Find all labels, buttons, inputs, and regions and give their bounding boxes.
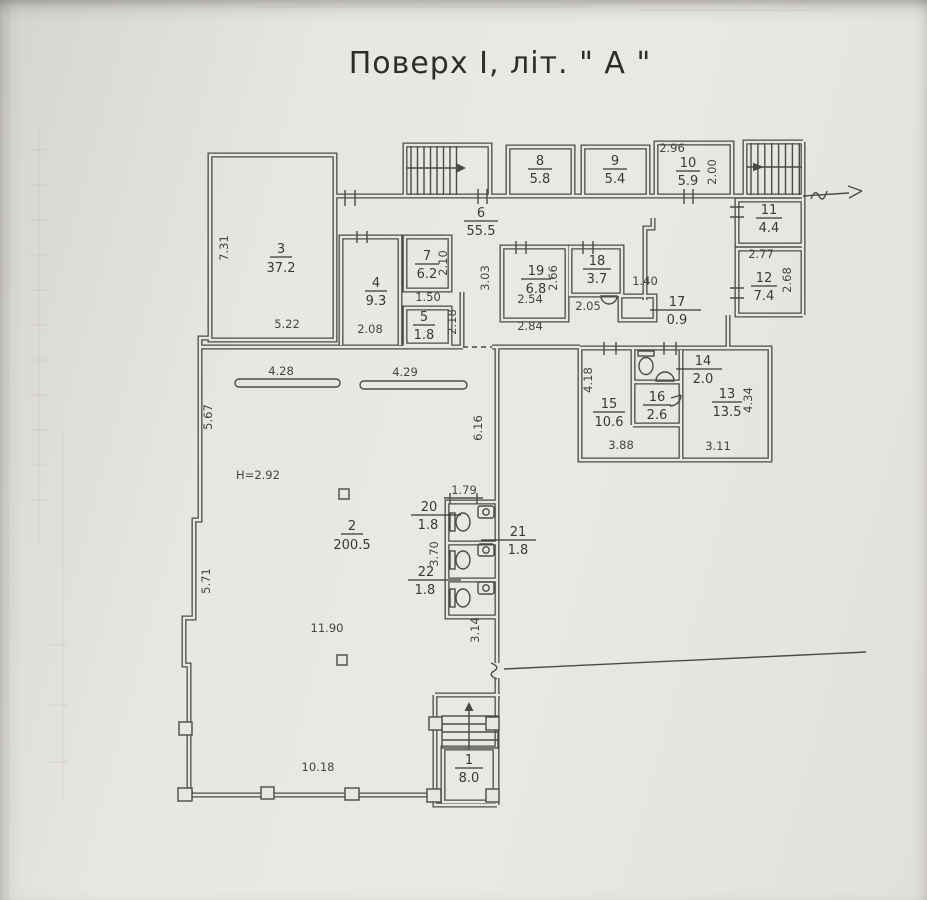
- room-18-number: 18: [589, 254, 606, 269]
- sink-icon: [478, 582, 494, 594]
- staircase-top-right-icon: [747, 143, 802, 195]
- room-14-fixtures: [638, 351, 674, 381]
- wc-stall-2-fixtures: [450, 544, 494, 569]
- column-marker: [429, 717, 442, 730]
- room-8-number: 8: [536, 154, 544, 169]
- room-15-area: 10.6: [595, 415, 624, 430]
- sink-icon: [483, 585, 489, 591]
- dim-counter-left: 4.28: [268, 364, 294, 378]
- scanned-floor-plan-page: Поверх І, літ. " А ": [0, 0, 927, 900]
- dim-room13-width: 3.11: [705, 439, 731, 453]
- dim-hall-left-upper: 5.67: [201, 404, 215, 430]
- room-6-number: 6: [477, 206, 485, 221]
- room-12-number: 12: [756, 271, 773, 286]
- dim-room18-gap: 1.40: [632, 274, 658, 288]
- dim-room19-height-left: 3.03: [478, 265, 492, 291]
- column-marker: [345, 788, 359, 800]
- column-marker: [486, 717, 499, 730]
- dim-room3-width: 5.22: [274, 317, 300, 331]
- room-1-number: 1: [465, 753, 473, 768]
- room-8-area: 5.8: [530, 172, 551, 187]
- room-16-number: 16: [649, 390, 666, 405]
- dim-room15-height: 4.18: [581, 367, 595, 393]
- toilet-icon: [638, 351, 654, 356]
- room-5-area: 1.8: [414, 328, 435, 343]
- room-13-area: 13.5: [713, 405, 742, 420]
- room-17-number: 17: [669, 295, 686, 310]
- dim-passage: 1.50: [415, 290, 441, 304]
- room-14-area: 2.0: [693, 372, 714, 387]
- dim-stalls-height: 3.70: [427, 541, 441, 567]
- toilet-icon: [456, 551, 470, 569]
- dim-counter-right: 4.29: [392, 365, 418, 379]
- dim-hall-right: 6.16: [471, 415, 485, 441]
- dim-hall-left-lower: 5.71: [199, 568, 213, 594]
- room-3-number: 3: [277, 242, 285, 257]
- room-11-area: 4.4: [759, 221, 780, 236]
- dim-room19-width-inner: 2.54: [517, 292, 543, 306]
- sink-icon: [478, 506, 494, 518]
- dim-room4-width: 2.08: [357, 322, 383, 336]
- stair-direction-arrow-icon: [457, 164, 466, 173]
- room-2-number: 2: [348, 519, 356, 534]
- room-19-number: 19: [528, 264, 545, 279]
- room-10-number: 10: [680, 156, 697, 171]
- staircase-top-left-icon: [406, 146, 466, 195]
- room-20-number: 20: [421, 500, 438, 515]
- dim-room10-depth: 2.00: [705, 159, 719, 185]
- floor-plan-drawing: Поверх І, літ. " А ": [0, 0, 927, 900]
- dim-room3-height: 7.31: [217, 235, 231, 261]
- dim-stall-width: 1.79: [451, 483, 477, 497]
- sink-icon: [478, 544, 494, 556]
- column-marker: [178, 788, 192, 801]
- wc-stall-3-fixtures: [450, 582, 494, 607]
- room-4-area: 9.3: [366, 294, 387, 309]
- page-bleedthrough-artifacts: [0, 0, 927, 900]
- dim-room7-height: 2.10: [436, 250, 450, 276]
- room-7-number: 7: [423, 249, 431, 264]
- dim-room12-width: 2.77: [748, 247, 774, 261]
- toilet-icon: [456, 589, 470, 607]
- dim-ceiling-height: H=2.92: [236, 468, 280, 482]
- toilet-icon: [450, 513, 455, 531]
- room-17-area: 0.9: [667, 313, 688, 328]
- dim-niche-height: 2.18: [445, 309, 459, 335]
- room-5-number: 5: [420, 310, 428, 325]
- sink-icon: [483, 547, 489, 553]
- dim-room18-width: 2.05: [575, 299, 601, 313]
- room-14-number: 14: [695, 354, 712, 369]
- column-marker: [337, 655, 347, 665]
- dim-wing-height: 3.14: [468, 617, 482, 643]
- dim-room15-width: 3.88: [608, 438, 634, 452]
- room-21-area: 1.8: [508, 543, 529, 558]
- dim-hall-width: 11.90: [311, 621, 344, 635]
- room-2-area: 200.5: [333, 538, 370, 553]
- dim-room10-width: 2.96: [659, 141, 685, 155]
- wc-stall-1-fixtures: [450, 506, 494, 531]
- room-15-number: 15: [601, 397, 618, 412]
- counter-right: [360, 381, 467, 389]
- room-7-area: 6.2: [417, 267, 438, 282]
- dim-hall-bottom-width: 10.18: [302, 760, 335, 774]
- column-marker: [179, 722, 192, 735]
- column-marker: [261, 787, 274, 799]
- room-9-area: 5.4: [605, 172, 626, 187]
- room-1-area: 8.0: [459, 771, 480, 786]
- dim-room19-width-outer: 2.84: [517, 319, 543, 333]
- room-6-area: 55.5: [467, 224, 496, 239]
- dim-room13-height: 4.34: [741, 387, 755, 413]
- counter-left: [235, 379, 340, 387]
- room-22-area: 1.8: [415, 583, 436, 598]
- dim-room12-depth: 2.68: [780, 267, 794, 293]
- toilet-icon: [456, 513, 470, 531]
- toilet-icon: [639, 358, 653, 375]
- room-21-number: 21: [510, 525, 527, 540]
- hall-counters: [235, 379, 467, 389]
- room-13-number: 13: [719, 387, 736, 402]
- stair-direction-arrow-icon: [465, 702, 474, 711]
- column-markers: [178, 489, 499, 802]
- dim-room19-height-right: 2.66: [546, 265, 560, 291]
- room-3-area: 37.2: [267, 261, 296, 276]
- room-11-number: 11: [761, 203, 778, 218]
- room-4-number: 4: [372, 276, 380, 291]
- room-18-area: 3.7: [587, 272, 608, 287]
- column-marker: [427, 789, 441, 802]
- column-marker: [339, 489, 349, 499]
- toilet-icon: [450, 589, 455, 607]
- room-12-area: 7.4: [754, 289, 775, 304]
- sink-icon: [483, 509, 489, 515]
- page-title: Поверх І, літ. " А ": [349, 46, 652, 81]
- boundary-line: [504, 652, 866, 669]
- room-16-area: 2.6: [647, 408, 668, 423]
- room-20-area: 1.8: [418, 518, 439, 533]
- room-10-area: 5.9: [678, 174, 699, 189]
- column-marker: [486, 789, 499, 802]
- direction-arrow-icon: [848, 186, 862, 198]
- wall-break-icon: [491, 663, 497, 679]
- room-9-number: 9: [611, 154, 619, 169]
- toilet-icon: [450, 551, 455, 569]
